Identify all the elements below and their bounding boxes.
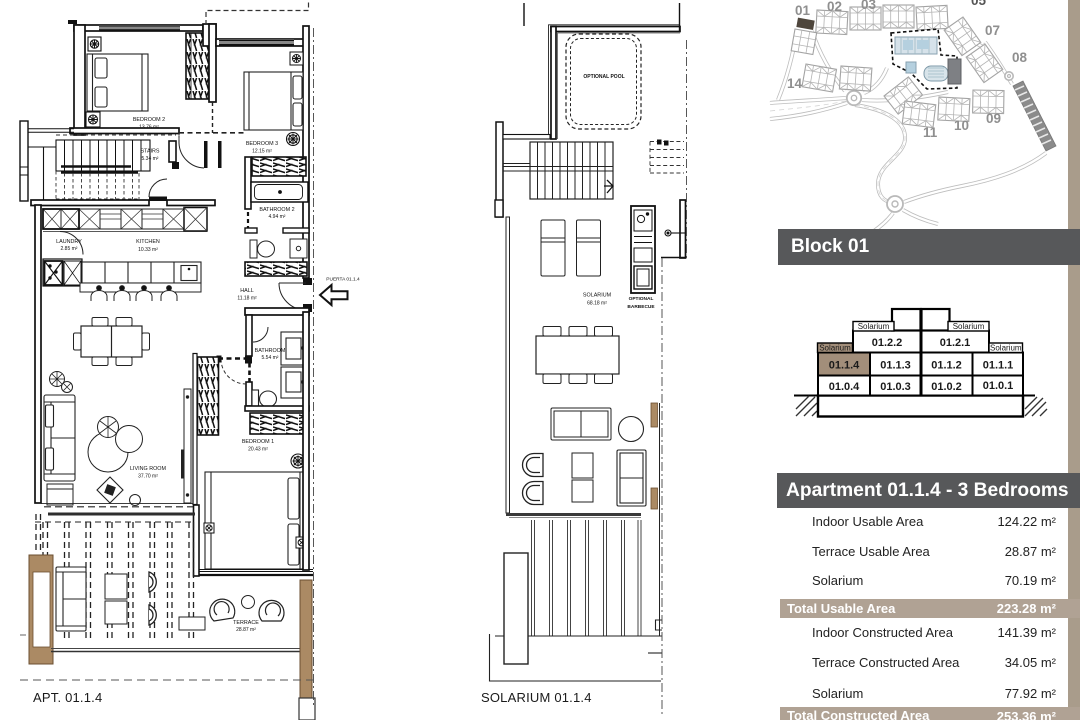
svg-text:05: 05 [971,0,987,8]
svg-text:01.1.4: 01.1.4 [829,360,860,372]
svg-text:01.0.4: 01.0.4 [829,381,860,393]
svg-text:28.87 m²: 28.87 m² [236,627,256,633]
svg-text:07: 07 [985,23,1000,38]
svg-text:01: 01 [795,3,811,18]
svg-text:OPTIONAL: OPTIONAL [629,296,654,302]
svg-text:LIVING ROOM: LIVING ROOM [130,466,166,472]
svg-text:KITCHEN: KITCHEN [136,239,160,245]
svg-text:01.0.2: 01.0.2 [931,381,962,393]
svg-text:10: 10 [954,118,969,133]
svg-text:BEDROOM 2: BEDROOM 2 [133,117,165,123]
svg-text:12.15 m²: 12.15 m² [252,149,272,155]
svg-text:01.0.1: 01.0.1 [983,380,1014,392]
svg-text:BEDROOM 3: BEDROOM 3 [246,141,278,147]
svg-text:02: 02 [827,0,842,14]
svg-text:01.1.3: 01.1.3 [880,360,911,372]
svg-text:Solarium: Solarium [819,344,851,353]
svg-text:01.0.3: 01.0.3 [880,381,911,393]
svg-text:BATHROOM 2: BATHROOM 2 [259,207,294,213]
svg-text:37.70 m²: 37.70 m² [138,474,158,480]
svg-text:4.94 m²: 4.94 m² [269,214,286,220]
svg-text:01.2.1: 01.2.1 [940,337,971,349]
svg-text:01.2.2: 01.2.2 [872,337,903,349]
svg-text:Solarium: Solarium [858,322,890,331]
svg-text:2.85 m²: 2.85 m² [61,246,78,252]
svg-text:OPTIONAL POOL: OPTIONAL POOL [583,74,624,80]
svg-text:09: 09 [986,111,1001,126]
svg-text:08: 08 [1012,50,1028,65]
svg-text:PUERTA 01.1.4: PUERTA 01.1.4 [326,277,360,283]
svg-text:5.54 m²: 5.54 m² [262,355,279,361]
svg-text:BATHROOM: BATHROOM [255,348,286,354]
svg-text:5.34 m²: 5.34 m² [142,156,159,162]
svg-text:APT. 01.1.4: APT. 01.1.4 [33,690,102,705]
svg-text:SOLARIUM 01.1.4: SOLARIUM 01.1.4 [481,690,592,705]
svg-text:68.18 m²: 68.18 m² [587,301,607,307]
svg-text:BARBECUE: BARBECUE [627,304,655,310]
svg-text:10.33 m²: 10.33 m² [138,247,158,253]
svg-text:11: 11 [923,125,938,140]
svg-text:01.1.2: 01.1.2 [931,360,962,372]
svg-text:03: 03 [861,0,877,12]
svg-text:STAIRS: STAIRS [140,149,159,155]
svg-text:Solarium: Solarium [953,322,985,331]
svg-text:14: 14 [787,76,803,91]
svg-text:TERRACE: TERRACE [233,620,259,626]
svg-text:SOLARIUM: SOLARIUM [583,293,612,299]
svg-text:11.18 m²: 11.18 m² [237,296,257,302]
svg-text:Solarium: Solarium [990,344,1022,353]
svg-text:20.43 m²: 20.43 m² [248,447,268,453]
svg-text:BEDROOM 1: BEDROOM 1 [242,439,274,445]
svg-text:HALL: HALL [240,288,254,294]
svg-text:01.1.1: 01.1.1 [983,360,1014,372]
